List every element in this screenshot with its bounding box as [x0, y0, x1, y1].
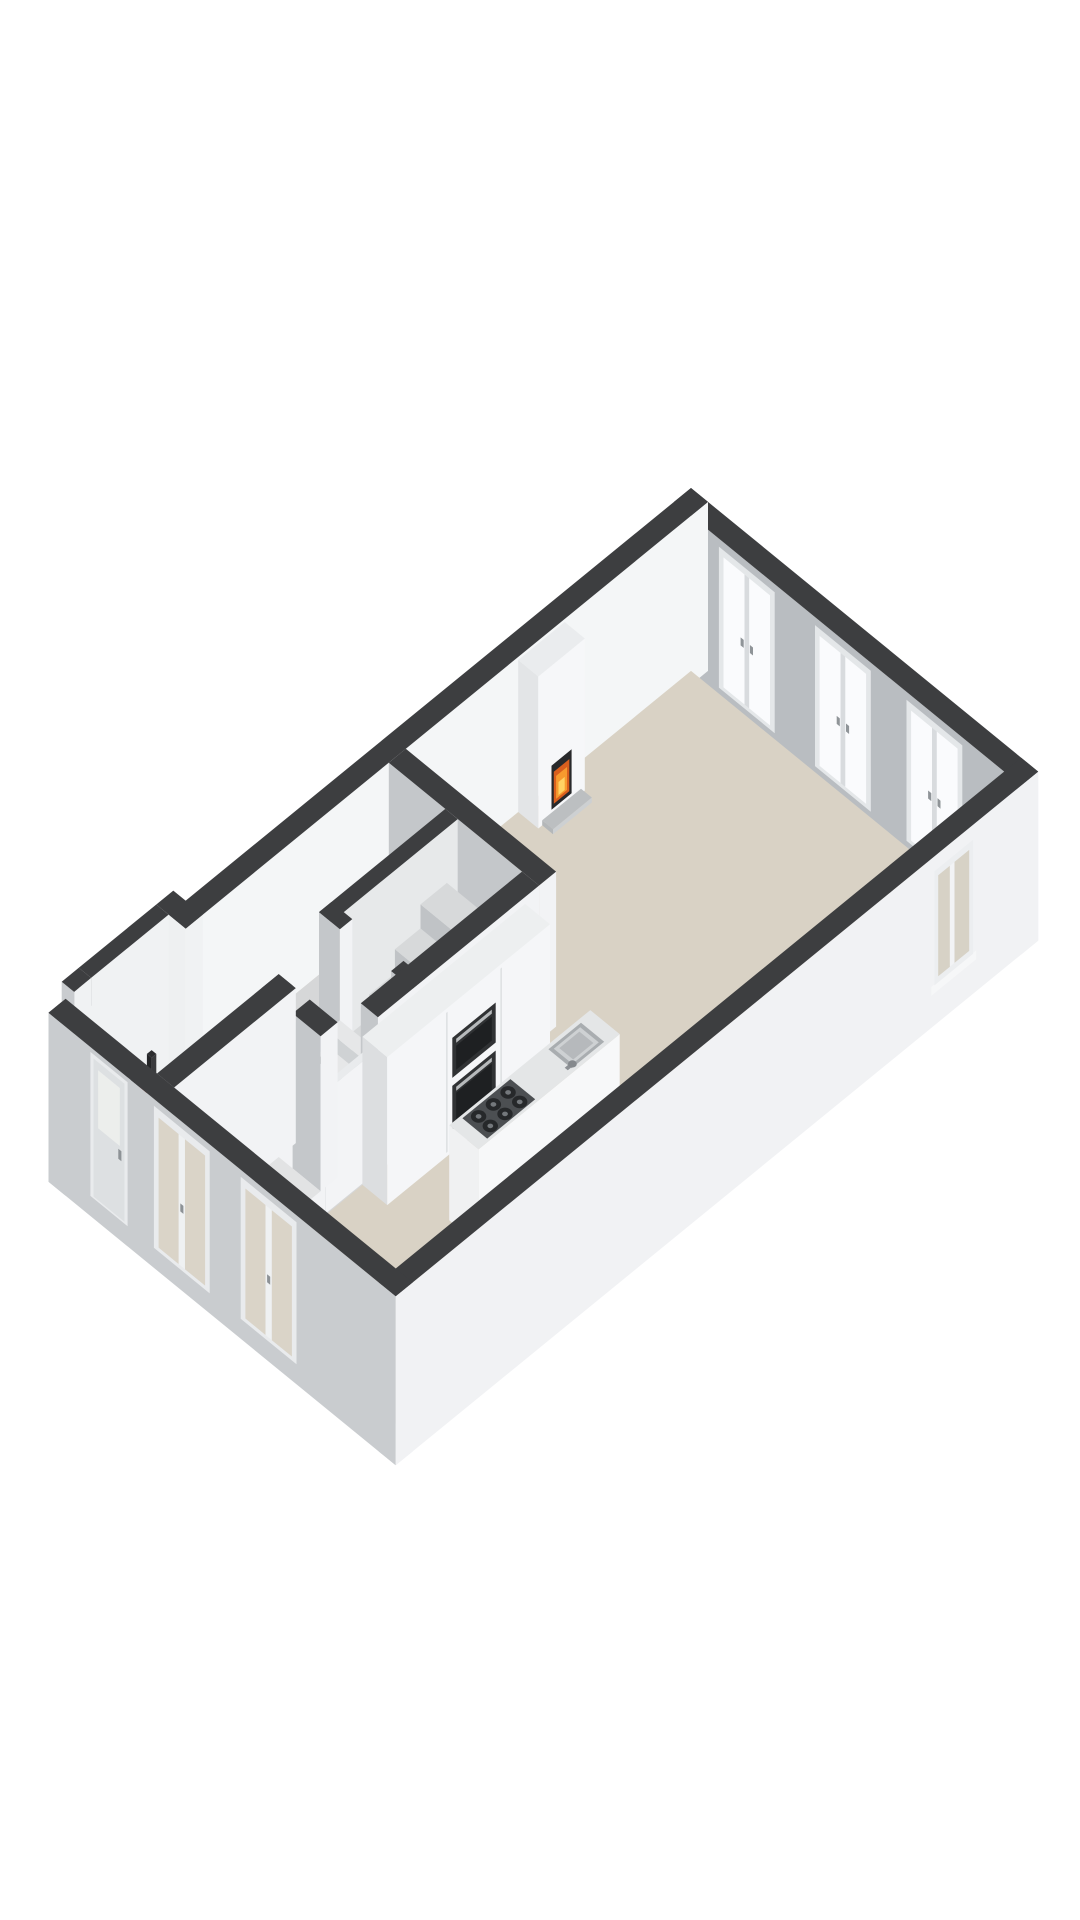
faucet-base: [568, 1060, 577, 1067]
se-window-mullion: [950, 862, 955, 967]
floorplan-3d-view: [0, 0, 1080, 1920]
floorplan-svg: [0, 0, 1080, 1920]
cabinet-seam-2: [446, 1012, 448, 1153]
burner-cap-3: [491, 1102, 497, 1107]
sw-doors-glass-b-r: [272, 1210, 292, 1356]
sw-doors-glass-b-l: [245, 1189, 265, 1336]
fireplace-chimney-breast-left-face: [518, 660, 538, 829]
wc-wall-n2-left-face: [293, 1013, 321, 1191]
french-doors-glass-2l: [820, 636, 841, 783]
exterior-wall-sw-right-face: [396, 1282, 413, 1465]
burner-cap-5: [476, 1114, 482, 1119]
kitchen-tall-cabinets-left-face: [362, 1037, 387, 1205]
sw-doors-glass-a-r: [185, 1139, 205, 1285]
sw-doors-mullion-a: [179, 1134, 185, 1269]
burner-cap-1: [505, 1090, 511, 1095]
burner-cap-2: [517, 1100, 523, 1105]
french-doors-mullion-1: [745, 575, 750, 709]
burner-cap-4: [502, 1112, 508, 1117]
french-doors-glass-1l: [724, 557, 745, 704]
burner-cap-6: [487, 1124, 493, 1129]
sw-doors-glass-a-l: [159, 1118, 179, 1265]
sw-doors-mullion-b: [266, 1205, 272, 1340]
se-window-glass-r: [938, 866, 950, 977]
wc-wall-n2-right-face: [321, 1022, 338, 1191]
french-doors-mullion-2: [841, 653, 846, 787]
se-window-glass-l: [955, 850, 970, 963]
